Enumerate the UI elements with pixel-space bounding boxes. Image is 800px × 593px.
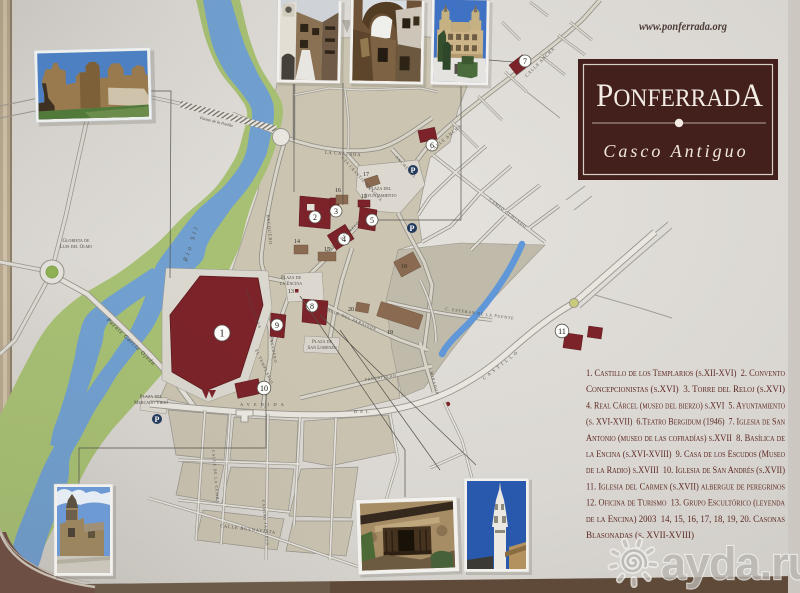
svg-text:5: 5 [370, 216, 374, 225]
svg-text:11. Iglesia del Carmen (s.XVII: 11. Iglesia del Carmen (s.XVII) albergue… [586, 481, 785, 492]
svg-text:12. Oficina de Turismo 13. Gr: 12. Oficina de Turismo 13. Grupo Escultó… [586, 498, 785, 509]
svg-text:Antonio (museo de las cofradía: Antonio (museo de las cofradías) s.XVII … [586, 433, 785, 444]
svg-text:www.ponferrada.org: www.ponferrada.org [639, 19, 727, 33]
svg-text:Concepcionistas (s.XVI) 3. To: Concepcionistas (s.XVI) 3. Torre del Rel… [586, 384, 785, 395]
svg-text:4. Real Cárcel (museo del bier: 4. Real Cárcel (museo del bierzo) s.XVI … [586, 400, 785, 411]
svg-text:1. Castillo de los Templarios: 1. Castillo de los Templarios (s.XII-XVI… [586, 368, 785, 379]
svg-text:18: 18 [401, 264, 407, 270]
svg-text:de la Encina) 2003 14, 15, 16: de la Encina) 2003 14, 15, 16, 17, 18, 1… [586, 514, 785, 525]
svg-text:11: 11 [558, 327, 566, 336]
svg-text:7: 7 [523, 57, 527, 66]
svg-text:P: P [410, 224, 415, 233]
svg-text:la Encina (s.XVI-XVIII) 9. Ca: la Encina (s.XVI-XVIII) 9. Casa de los E… [586, 449, 785, 460]
svg-text:(s. XVI-XVII) 6.Teatro Bergid: (s. XVI-XVII) 6.Teatro Bergidum (1946) 7… [586, 417, 785, 428]
svg-text:de la Radio) s.XVIII 10. Igle: de la Radio) s.XVIII 10. Iglesia de San … [586, 465, 785, 476]
svg-text:ayda.ru: ayda.ru [661, 538, 800, 589]
svg-text:Casco Antiguo: Casco Antiguo [603, 141, 748, 161]
